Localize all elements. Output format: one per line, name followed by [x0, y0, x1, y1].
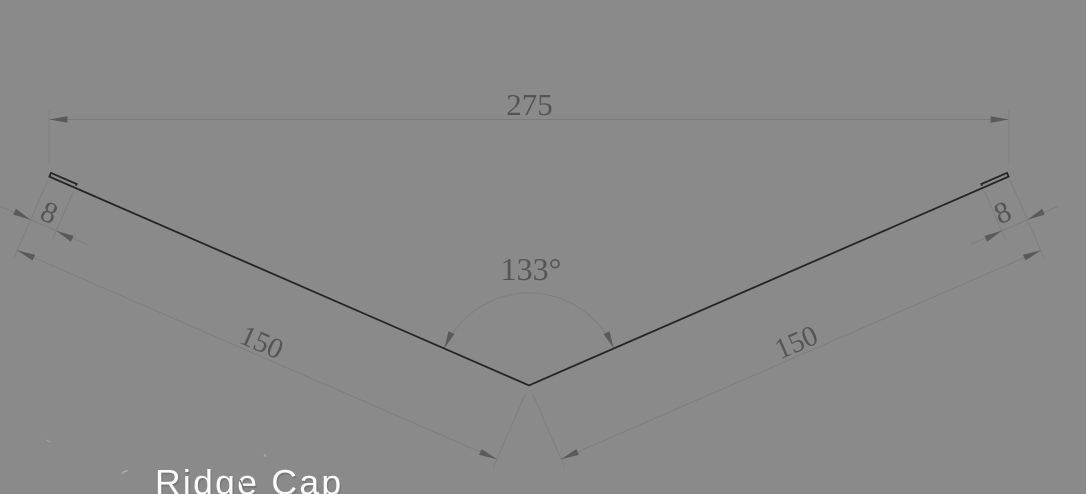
- svg-text:Ridge Cap: Ridge Cap: [155, 463, 343, 494]
- svg-text:275: 275: [506, 87, 553, 122]
- svg-text:133°: 133°: [501, 251, 562, 287]
